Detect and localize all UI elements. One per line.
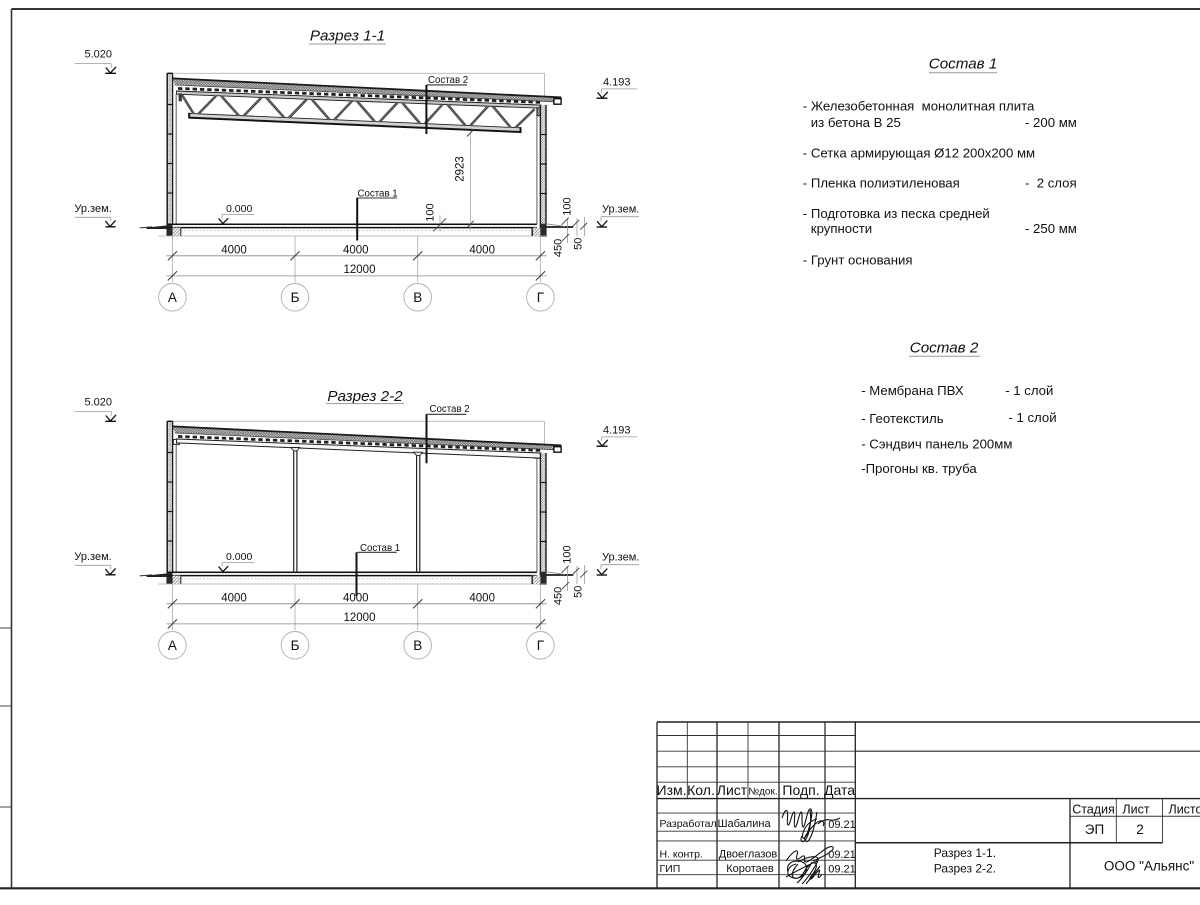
svg-text:- Железобетонная монолитная п: - Железобетонная монолитная плита bbox=[803, 99, 1035, 114]
svg-text:Состав 1: Состав 1 bbox=[929, 56, 998, 73]
svg-text:4000: 4000 bbox=[469, 592, 495, 604]
svg-text:Разрез 1-1: Разрез 1-1 bbox=[310, 28, 385, 45]
svg-text:0.000: 0.000 bbox=[226, 203, 252, 215]
svg-text:крупности: крупности bbox=[811, 221, 872, 236]
svg-text:09.21: 09.21 bbox=[828, 849, 856, 861]
svg-text:Разрез 1-1.: Разрез 1-1. bbox=[934, 846, 996, 860]
svg-text:Разрез 2-2: Разрез 2-2 bbox=[327, 388, 403, 405]
svg-text:4000: 4000 bbox=[469, 244, 495, 256]
svg-text:Г: Г bbox=[537, 290, 545, 305]
svg-text:2923: 2923 bbox=[454, 156, 466, 182]
svg-text:Изм.: Изм. bbox=[657, 782, 687, 798]
svg-text:- 1 слой: - 1 слой bbox=[1008, 410, 1056, 425]
svg-text:Коротаев: Коротаев bbox=[726, 863, 774, 875]
svg-text:Разработал: Разработал bbox=[660, 818, 717, 830]
svg-text:0.000: 0.000 bbox=[226, 551, 252, 563]
svg-text:Ур.зем.: Ур.зем. bbox=[602, 203, 639, 215]
svg-text:2: 2 bbox=[1136, 822, 1144, 837]
svg-text:4000: 4000 bbox=[221, 244, 247, 256]
svg-text:Ур.зем.: Ур.зем. bbox=[602, 551, 639, 563]
svg-text:- 1 слой: - 1 слой bbox=[1005, 383, 1053, 398]
svg-text:А: А bbox=[168, 290, 177, 305]
svg-text:ООО "Альянс": ООО "Альянс" bbox=[1104, 859, 1194, 874]
svg-text:- 200 мм: - 200 мм bbox=[1025, 115, 1077, 130]
svg-text:09.21: 09.21 bbox=[828, 864, 856, 876]
svg-text:ЭП: ЭП bbox=[1085, 822, 1104, 837]
svg-text:12000: 12000 bbox=[344, 612, 376, 624]
svg-text:ГИП: ГИП bbox=[660, 863, 681, 875]
svg-text:12000: 12000 bbox=[344, 264, 376, 276]
svg-text:- Сэндвич панель 200мм: - Сэндвич панель 200мм bbox=[861, 437, 1012, 452]
svg-text:50: 50 bbox=[572, 586, 584, 598]
svg-text:450: 450 bbox=[553, 239, 565, 257]
svg-text:- Грунт основания: - Грунт основания bbox=[803, 253, 913, 268]
svg-text:Разрез 2-2.: Разрез 2-2. bbox=[934, 861, 996, 875]
svg-text:Ур.зем.: Ур.зем. bbox=[74, 203, 111, 215]
svg-text:100: 100 bbox=[561, 197, 573, 215]
svg-text:- Сетка армирующая Ø12 200х200: - Сетка армирующая Ø12 200х200 мм bbox=[803, 146, 1035, 161]
svg-text:Стадия: Стадия bbox=[1072, 803, 1115, 817]
svg-text:5.020: 5.020 bbox=[84, 397, 112, 409]
svg-text:Г: Г bbox=[537, 638, 545, 653]
svg-text:Подп.: Подп. bbox=[782, 782, 819, 798]
svg-text:5.020: 5.020 bbox=[84, 49, 112, 61]
svg-text:Лист: Лист bbox=[1122, 803, 1149, 817]
svg-text:100: 100 bbox=[561, 545, 573, 563]
svg-text:Двоеглазов: Двоеглазов bbox=[719, 849, 778, 861]
svg-text:Кол.: Кол. bbox=[687, 782, 715, 798]
svg-text:Шабалина: Шабалина bbox=[717, 818, 771, 830]
svg-text:-Прогоны кв. труба: -Прогоны кв. труба bbox=[861, 461, 977, 476]
svg-text:450: 450 bbox=[553, 587, 565, 605]
svg-text:4.193: 4.193 bbox=[603, 425, 631, 437]
svg-text:- Геотекстиль: - Геотекстиль bbox=[861, 411, 944, 426]
svg-text:В: В bbox=[413, 290, 422, 305]
svg-text:- Подготовка из песка средней: - Подготовка из песка средней bbox=[803, 206, 990, 221]
svg-text:Ур.зем.: Ур.зем. bbox=[74, 551, 111, 563]
svg-text:4.193: 4.193 bbox=[603, 77, 631, 89]
svg-text:- 2 слоя: - 2 слоя bbox=[1025, 176, 1077, 191]
svg-text:№док.: №док. bbox=[748, 787, 777, 798]
svg-text:Дата: Дата bbox=[824, 782, 855, 798]
svg-text:Н. контр.: Н. контр. bbox=[660, 848, 703, 860]
svg-text:50: 50 bbox=[572, 238, 584, 250]
svg-text:Б: Б bbox=[291, 638, 300, 653]
svg-text:4000: 4000 bbox=[343, 244, 369, 256]
svg-text:из бетона В 25: из бетона В 25 bbox=[811, 115, 901, 130]
svg-text:А: А bbox=[168, 638, 177, 653]
svg-text:Состав 2: Состав 2 bbox=[428, 75, 468, 86]
svg-text:Состав 2: Состав 2 bbox=[910, 339, 979, 356]
svg-text:09.21: 09.21 bbox=[828, 819, 856, 831]
svg-text:100: 100 bbox=[425, 203, 437, 221]
svg-text:4000: 4000 bbox=[221, 592, 247, 604]
svg-text:Состав 2: Состав 2 bbox=[430, 404, 470, 415]
svg-text:Листов: Листов bbox=[1169, 803, 1200, 817]
svg-text:- Мембрана ПВХ: - Мембрана ПВХ bbox=[861, 383, 964, 398]
svg-text:Б: Б bbox=[291, 290, 300, 305]
svg-text:Лист: Лист bbox=[717, 782, 748, 798]
svg-text:- 250 мм: - 250 мм bbox=[1025, 221, 1077, 236]
svg-text:В: В bbox=[413, 638, 422, 653]
svg-text:- Пленка полиэтиленовая: - Пленка полиэтиленовая bbox=[803, 176, 960, 191]
